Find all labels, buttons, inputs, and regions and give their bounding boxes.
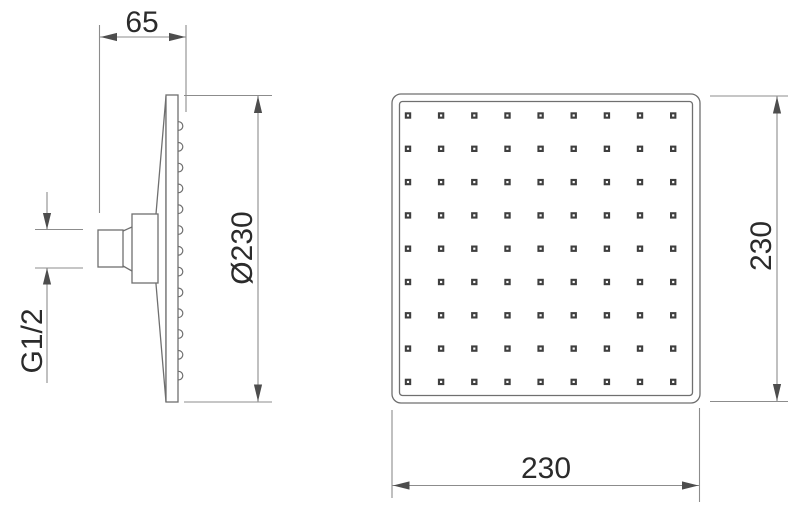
nozzle-dot <box>473 281 475 283</box>
nozzle <box>471 345 477 351</box>
nozzle <box>504 379 510 385</box>
nozzle <box>405 112 411 118</box>
nozzle-dot <box>473 348 475 350</box>
dim-width-arrow-left <box>101 33 118 41</box>
nozzle-dot <box>672 348 674 350</box>
nozzle-dot <box>639 248 641 250</box>
nozzle-dot <box>639 114 641 116</box>
nozzle-dot <box>440 214 442 216</box>
nozzle-dot <box>473 114 475 116</box>
nozzle-dot <box>672 214 674 216</box>
nozzle-dot <box>407 114 409 116</box>
dim-front-height-arrow-top <box>773 97 781 114</box>
nozzle-dot <box>672 248 674 250</box>
nozzle <box>537 146 543 152</box>
side-housing <box>132 214 158 283</box>
nozzle-dot <box>639 314 641 316</box>
nozzle-dot <box>573 148 575 150</box>
nozzle-dot <box>407 281 409 283</box>
nozzle <box>438 379 444 385</box>
nozzle <box>604 179 610 185</box>
nozzle-bump <box>179 351 183 360</box>
nozzle-dot <box>573 348 575 350</box>
nozzle <box>537 212 543 218</box>
nozzle-dot <box>540 114 542 116</box>
nozzle-bump <box>179 267 183 276</box>
dim-thread-arrow-down <box>43 213 51 230</box>
nozzle-bump <box>179 330 183 339</box>
nozzle <box>471 112 477 118</box>
nozzle <box>670 379 676 385</box>
nozzle-dot <box>606 381 608 383</box>
nozzle-dot <box>639 148 641 150</box>
nozzle-dot <box>506 148 508 150</box>
nozzle <box>637 146 643 152</box>
nozzle <box>438 112 444 118</box>
nozzle-bump <box>179 122 183 131</box>
drawing-canvas: 65 Ø230 G1/2 <box>0 0 800 531</box>
nozzle <box>537 246 543 252</box>
nozzle <box>637 112 643 118</box>
dim-front-width-arrow-right <box>682 481 699 489</box>
nozzle <box>604 312 610 318</box>
nozzle-dot <box>573 114 575 116</box>
nozzle <box>504 112 510 118</box>
nozzle-dot <box>407 348 409 350</box>
nozzle-dot <box>573 214 575 216</box>
nozzle-dot <box>407 314 409 316</box>
nozzle-dot <box>672 314 674 316</box>
nozzle-dot <box>639 214 641 216</box>
nozzle <box>637 279 643 285</box>
nozzle <box>537 312 543 318</box>
nozzle-bump <box>179 163 183 172</box>
nozzle-dot <box>473 314 475 316</box>
nozzle <box>604 146 610 152</box>
nozzle-bump <box>179 184 183 193</box>
nozzle <box>637 246 643 252</box>
nozzle <box>670 146 676 152</box>
dim-thread-arrow-up <box>43 268 51 285</box>
dim-front-height-arrow-bottom <box>773 384 781 401</box>
nozzle <box>405 379 411 385</box>
side-view <box>98 95 183 402</box>
nozzle <box>405 146 411 152</box>
nozzle <box>405 345 411 351</box>
nozzle-dot <box>440 148 442 150</box>
nozzle <box>537 345 543 351</box>
nozzle <box>571 312 577 318</box>
nozzle-dot <box>407 148 409 150</box>
nozzle <box>637 379 643 385</box>
nozzle <box>537 112 543 118</box>
nozzle-dot <box>506 214 508 216</box>
nozzle-dot <box>606 314 608 316</box>
nozzle-dot <box>440 281 442 283</box>
nozzle <box>637 312 643 318</box>
nozzle <box>637 179 643 185</box>
nozzle-dot <box>540 281 542 283</box>
nozzle-dot <box>672 114 674 116</box>
nozzle <box>537 279 543 285</box>
nozzle <box>571 379 577 385</box>
nozzle <box>604 345 610 351</box>
nozzle-dot <box>672 181 674 183</box>
dim-front-height: 230 <box>710 96 788 402</box>
nozzle <box>571 279 577 285</box>
nozzle <box>670 112 676 118</box>
nozzle-dot <box>506 381 508 383</box>
nozzle-dot <box>639 281 641 283</box>
nozzle-dot <box>407 381 409 383</box>
nozzle-dot <box>639 348 641 350</box>
nozzle-dot <box>573 181 575 183</box>
nozzle <box>405 212 411 218</box>
side-face-plate <box>166 95 178 402</box>
dim-thread: G1/2 <box>16 192 83 383</box>
dim-front-width-arrow-left <box>393 481 410 489</box>
nozzle <box>604 212 610 218</box>
nozzle <box>571 112 577 118</box>
dim-diameter-arrow-bottom <box>254 385 262 402</box>
nozzle-dot <box>407 214 409 216</box>
nozzle <box>438 212 444 218</box>
side-neck <box>123 227 132 271</box>
nozzle-dot <box>440 114 442 116</box>
nozzle-dot <box>540 348 542 350</box>
nozzle-dot <box>672 381 674 383</box>
nozzle-dot <box>506 248 508 250</box>
nozzle <box>670 212 676 218</box>
nozzle-dot <box>606 281 608 283</box>
nozzle-bump <box>179 288 183 297</box>
dim-front-height-label: 230 <box>745 221 778 271</box>
nozzle-dot <box>440 348 442 350</box>
dim-front-width-label: 230 <box>521 452 571 485</box>
nozzle <box>438 146 444 152</box>
nozzle-dot <box>540 214 542 216</box>
dim-width-label: 65 <box>125 6 158 39</box>
dim-diameter-arrow-top <box>254 96 262 113</box>
nozzle <box>670 179 676 185</box>
nozzle <box>471 212 477 218</box>
nozzle <box>670 246 676 252</box>
nozzle-dot <box>473 181 475 183</box>
nozzle-dot <box>440 248 442 250</box>
nozzle-dot <box>606 181 608 183</box>
nozzle-bump <box>179 247 183 256</box>
nozzle <box>571 246 577 252</box>
nozzle <box>438 345 444 351</box>
nozzle-dot <box>440 181 442 183</box>
nozzle-dot <box>573 248 575 250</box>
nozzle-dot <box>672 281 674 283</box>
nozzle-dot <box>606 348 608 350</box>
nozzle <box>571 146 577 152</box>
nozzle-dot <box>506 314 508 316</box>
dim-width-arrow-right <box>169 33 186 41</box>
nozzle <box>670 345 676 351</box>
nozzle-dot <box>506 114 508 116</box>
nozzle <box>438 279 444 285</box>
nozzle-dot <box>473 148 475 150</box>
nozzle-dot <box>606 114 608 116</box>
dim-diameter: Ø230 <box>184 96 272 403</box>
nozzle-dot <box>606 248 608 250</box>
technical-drawing: 65 Ø230 G1/2 <box>0 0 800 531</box>
nozzle-dot <box>473 248 475 250</box>
nozzle <box>438 246 444 252</box>
nozzle <box>504 212 510 218</box>
nozzle-dot <box>540 248 542 250</box>
nozzle <box>637 345 643 351</box>
nozzle-dot <box>573 314 575 316</box>
nozzle-dot <box>606 214 608 216</box>
dim-thread-label: G1/2 <box>16 308 49 373</box>
nozzle <box>571 212 577 218</box>
nozzle-bump <box>179 143 183 152</box>
nozzle-dot <box>506 348 508 350</box>
nozzle-bump <box>179 371 183 380</box>
nozzle <box>471 379 477 385</box>
nozzle-dot <box>672 148 674 150</box>
nozzle <box>471 246 477 252</box>
nozzle <box>438 179 444 185</box>
nozzle-dot <box>606 148 608 150</box>
nozzle <box>571 345 577 351</box>
nozzle <box>670 312 676 318</box>
nozzle <box>604 112 610 118</box>
nozzle-dot <box>407 181 409 183</box>
nozzle <box>571 179 577 185</box>
nozzle <box>504 246 510 252</box>
side-inlet-connector <box>98 230 123 267</box>
nozzle <box>604 379 610 385</box>
nozzle <box>537 179 543 185</box>
nozzle-dot <box>506 281 508 283</box>
nozzle <box>471 279 477 285</box>
nozzle-dot <box>639 381 641 383</box>
nozzle <box>504 345 510 351</box>
nozzle <box>471 146 477 152</box>
nozzle <box>471 312 477 318</box>
nozzle-dot <box>573 281 575 283</box>
nozzle-dot <box>506 181 508 183</box>
nozzle <box>604 246 610 252</box>
nozzle <box>604 279 610 285</box>
nozzle-dot <box>473 381 475 383</box>
nozzle-dot <box>440 381 442 383</box>
nozzle-dot <box>639 181 641 183</box>
nozzle <box>405 179 411 185</box>
dim-diameter-label: Ø230 <box>226 211 259 284</box>
nozzle-dot <box>540 381 542 383</box>
nozzle-bump <box>179 309 183 318</box>
nozzle <box>504 146 510 152</box>
nozzle-dot <box>473 214 475 216</box>
nozzle-dot <box>440 314 442 316</box>
nozzle-dot <box>540 148 542 150</box>
dim-front-width: 230 <box>392 408 700 502</box>
front-view <box>392 94 700 403</box>
nozzle <box>438 312 444 318</box>
nozzle-dot <box>407 248 409 250</box>
nozzle <box>504 179 510 185</box>
nozzle <box>637 212 643 218</box>
nozzle-dot <box>540 181 542 183</box>
nozzle <box>405 312 411 318</box>
nozzle <box>504 279 510 285</box>
nozzle-dot <box>540 314 542 316</box>
nozzle <box>405 246 411 252</box>
nozzle <box>670 279 676 285</box>
nozzle <box>405 279 411 285</box>
nozzle-bump <box>179 226 183 235</box>
nozzle-bump <box>179 205 183 214</box>
nozzle <box>537 379 543 385</box>
nozzle <box>471 179 477 185</box>
nozzle-dot <box>573 381 575 383</box>
side-nozzle-bumps <box>179 122 183 380</box>
nozzle <box>504 312 510 318</box>
